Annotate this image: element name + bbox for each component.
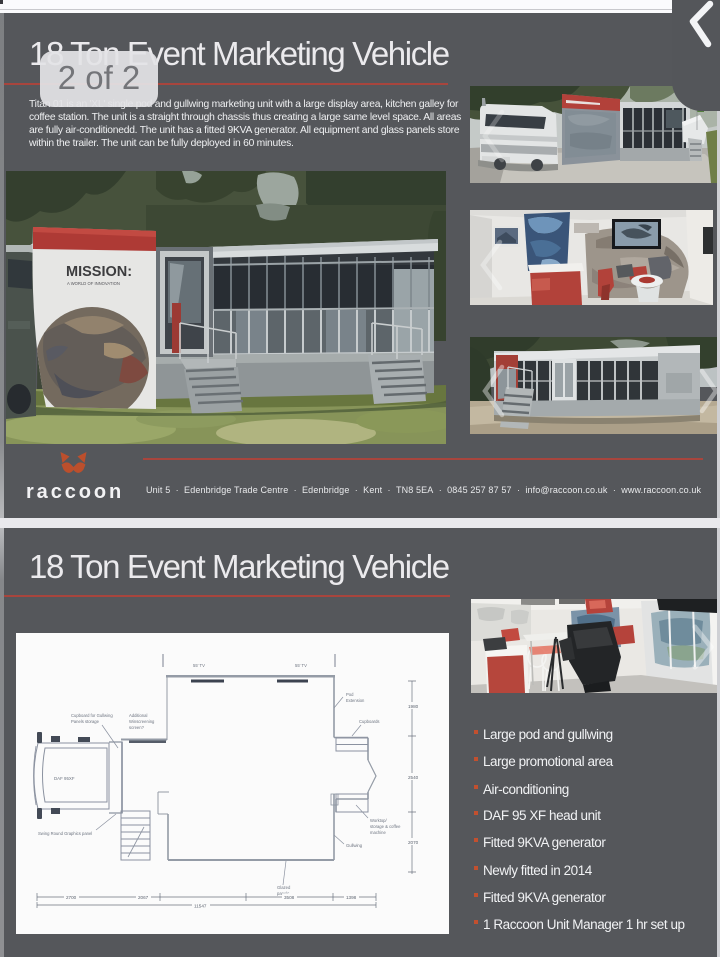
svg-text:2067: 2067 (138, 895, 149, 900)
svg-text:screen?: screen? (129, 725, 145, 730)
svg-text:Additional: Additional (129, 713, 147, 718)
svg-text:DAF 95XF: DAF 95XF (54, 776, 75, 781)
svg-text:Winscreening: Winscreening (129, 719, 155, 724)
svg-text:Swing Round Graphics panel: Swing Round Graphics panel (38, 831, 92, 836)
svg-text:1980: 1980 (408, 704, 419, 709)
svg-text:55' TV: 55' TV (193, 663, 205, 668)
svg-text:Worktop/: Worktop/ (370, 818, 388, 823)
svg-text:1398: 1398 (346, 895, 357, 900)
svg-text:3508: 3508 (284, 895, 295, 900)
svg-text:Cupboards: Cupboards (359, 719, 380, 724)
svg-text:Extension: Extension (346, 698, 365, 703)
svg-text:machine: machine (370, 830, 386, 835)
svg-text:2070: 2070 (408, 840, 419, 845)
svg-text:MISSION:: MISSION: (66, 264, 132, 280)
svg-text:Cupboard for Gullwing: Cupboard for Gullwing (71, 713, 113, 718)
svg-text:A WORLD OF INNOVATION: A WORLD OF INNOVATION (67, 281, 120, 286)
svg-text:55' TV: 55' TV (295, 663, 307, 668)
svg-text:Panels storage: Panels storage (71, 719, 100, 724)
svg-text:2540: 2540 (408, 775, 419, 780)
svg-text:Gullwing: Gullwing (346, 843, 363, 848)
svg-text:Pod: Pod (346, 692, 354, 697)
svg-text:storage & coffee: storage & coffee (370, 824, 401, 829)
svg-text:Glazed: Glazed (277, 885, 291, 890)
svg-text:11547: 11547 (194, 904, 207, 909)
svg-text:2700: 2700 (66, 895, 77, 900)
